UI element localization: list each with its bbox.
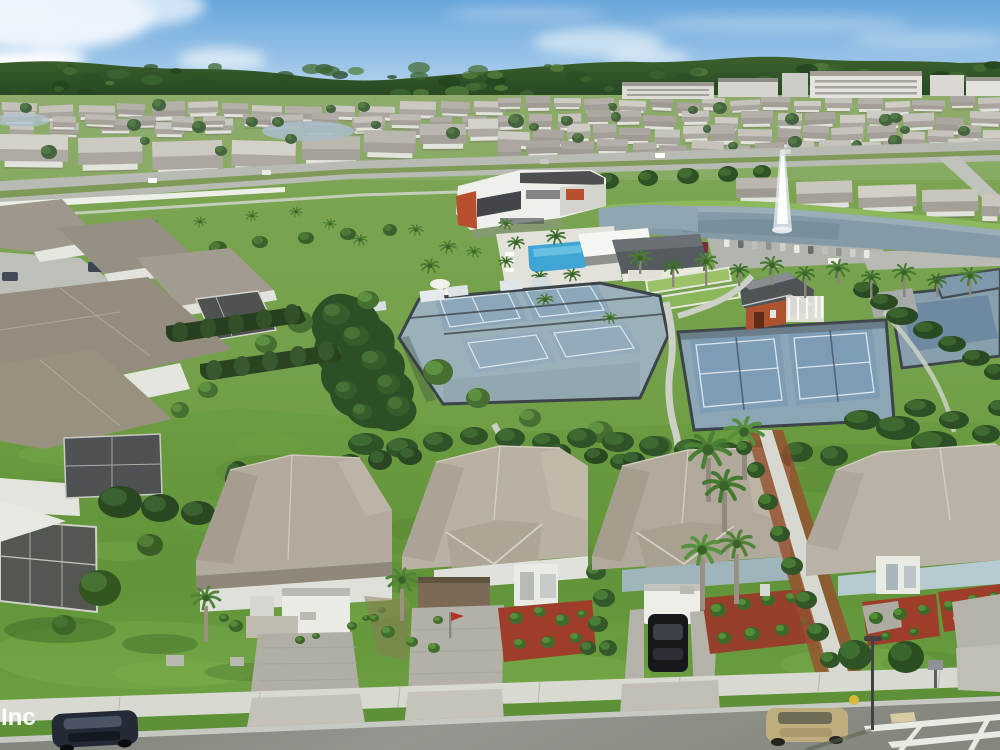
- svg-text:Inc: Inc: [1, 704, 36, 731]
